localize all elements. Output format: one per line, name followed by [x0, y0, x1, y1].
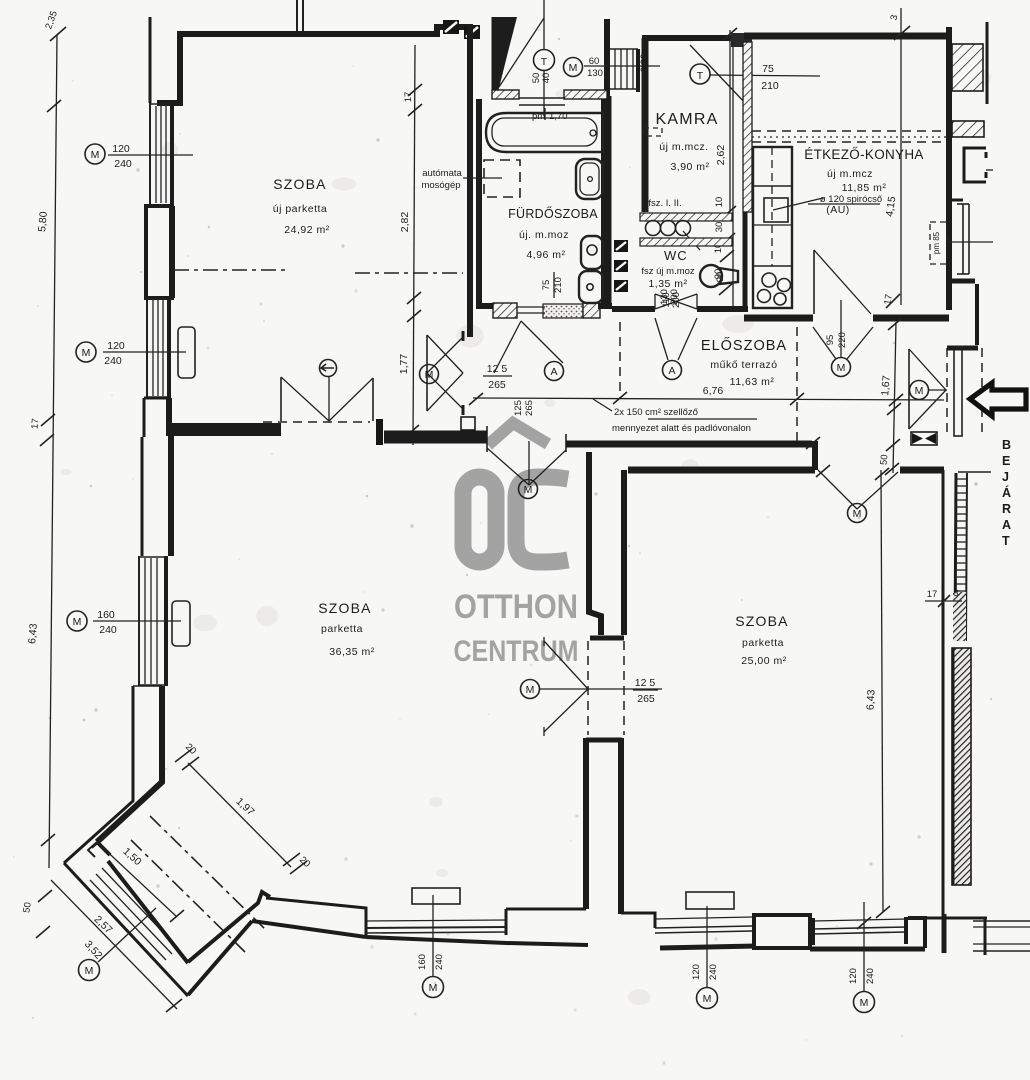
svg-text:265: 265: [524, 400, 535, 416]
svg-text:parketta: parketta: [742, 637, 784, 649]
svg-text:A: A: [1002, 518, 1011, 532]
svg-text:240: 240: [865, 968, 876, 984]
svg-text:új m.mcz.: új m.mcz.: [659, 141, 708, 153]
svg-text:200: 200: [671, 292, 682, 308]
svg-text:120: 120: [107, 340, 125, 352]
svg-text:90: 90: [715, 272, 726, 283]
svg-text:Á: Á: [1002, 485, 1011, 500]
svg-text:95: 95: [825, 335, 836, 346]
svg-text:2,82: 2,82: [399, 212, 411, 233]
svg-text:SZOBA: SZOBA: [318, 600, 371, 616]
svg-text:fsz új m.moz: fsz új m.moz: [641, 266, 695, 277]
svg-text:4,96 m²: 4,96 m²: [526, 249, 565, 261]
svg-text:új m.mcz: új m.mcz: [827, 168, 873, 180]
svg-text:A: A: [550, 366, 557, 378]
svg-text:11,85 m²: 11,85 m²: [842, 182, 887, 194]
svg-text:12 5: 12 5: [635, 677, 656, 689]
svg-text:160: 160: [97, 609, 115, 621]
svg-text:1,70: 1,70: [549, 111, 568, 122]
svg-text:M: M: [915, 385, 924, 397]
svg-text:210: 210: [761, 80, 779, 92]
svg-text:17: 17: [882, 293, 895, 305]
svg-text:M: M: [73, 616, 82, 628]
svg-text:CENTRUM: CENTRUM: [454, 635, 579, 668]
svg-text:autómata: autómata: [422, 168, 462, 179]
svg-text:120: 120: [112, 143, 130, 155]
svg-text:3: 3: [953, 588, 958, 599]
svg-text:240: 240: [708, 964, 719, 980]
svg-text:T: T: [541, 56, 548, 68]
svg-text:ÉTKEZŐ-KONYHA: ÉTKEZŐ-KONYHA: [804, 147, 923, 162]
svg-text:120: 120: [848, 968, 859, 984]
svg-text:6,43: 6,43: [864, 689, 877, 710]
svg-text:75: 75: [762, 63, 774, 75]
svg-text:R: R: [1002, 502, 1011, 516]
svg-text:új parketta: új parketta: [273, 203, 328, 215]
svg-text:M: M: [853, 508, 862, 520]
svg-text:75: 75: [541, 280, 552, 291]
svg-text:24,92 m²: 24,92 m²: [284, 224, 329, 236]
svg-text:M: M: [703, 993, 712, 1005]
svg-text:pm: pm: [532, 111, 545, 122]
svg-text:M: M: [526, 684, 535, 696]
svg-text:210: 210: [553, 277, 564, 293]
svg-text:240: 240: [99, 624, 117, 636]
svg-text:125: 125: [513, 400, 524, 416]
svg-text:új. m.moz: új. m.moz: [519, 229, 569, 241]
svg-text:3,90 m²: 3,90 m²: [670, 161, 709, 173]
svg-text:10: 10: [714, 197, 725, 208]
svg-text:SZOBA: SZOBA: [735, 613, 788, 629]
svg-text:műkő terrazó: műkő terrazó: [710, 359, 777, 371]
svg-text:130: 130: [587, 68, 603, 79]
svg-text:2x 150 cm² szellőző: 2x 150 cm² szellőző: [614, 407, 698, 418]
svg-text:1,67: 1,67: [879, 375, 893, 397]
svg-text:17: 17: [927, 589, 938, 600]
svg-text:220: 220: [837, 332, 848, 348]
svg-text:M: M: [837, 362, 846, 374]
svg-text:J: J: [1002, 470, 1009, 484]
svg-text:17: 17: [30, 418, 42, 429]
svg-text:40: 40: [541, 73, 552, 84]
svg-text:11,63 m²: 11,63 m²: [730, 376, 775, 388]
svg-text:A: A: [668, 365, 675, 377]
svg-text:160: 160: [417, 954, 428, 970]
svg-text:pm 85: pm 85: [932, 231, 941, 254]
svg-text:30: 30: [714, 222, 725, 233]
svg-text:WC: WC: [664, 248, 688, 263]
svg-text:6,76: 6,76: [703, 385, 724, 397]
svg-text:36,35 m²: 36,35 m²: [329, 646, 374, 658]
svg-text:265: 265: [488, 379, 506, 391]
svg-text:M: M: [425, 369, 434, 381]
svg-text:M: M: [429, 982, 438, 994]
svg-text:mosógép: mosógép: [421, 180, 460, 191]
svg-text:50: 50: [879, 454, 891, 465]
svg-text:mennyezet alatt és padlóvonalo: mennyezet alatt és padlóvonalon: [612, 423, 751, 434]
svg-text:T: T: [1002, 534, 1010, 548]
svg-text:240: 240: [104, 355, 122, 367]
svg-text:M: M: [569, 62, 578, 74]
svg-text:ELŐSZOBA: ELŐSZOBA: [701, 337, 787, 354]
svg-text:1,35 m²: 1,35 m²: [648, 278, 687, 290]
svg-text:17: 17: [403, 92, 414, 103]
svg-text:240: 240: [114, 158, 132, 170]
svg-text:FÜRDŐSZOBA: FÜRDŐSZOBA: [508, 206, 598, 221]
svg-text:2,62: 2,62: [715, 145, 727, 166]
svg-text:SZOBA: SZOBA: [273, 176, 326, 192]
svg-text:B: B: [1002, 438, 1011, 452]
svg-text:(AU): (AU): [826, 204, 850, 216]
svg-text:265: 265: [637, 693, 655, 705]
svg-text:M: M: [82, 347, 91, 359]
svg-text:120: 120: [691, 964, 702, 980]
svg-text:240: 240: [434, 954, 445, 970]
svg-text:OTTHON: OTTHON: [454, 588, 578, 626]
svg-text:M: M: [85, 965, 94, 977]
svg-text:parketta: parketta: [321, 623, 363, 635]
svg-text:M: M: [91, 149, 100, 161]
svg-text:25,00 m²: 25,00 m²: [741, 655, 786, 667]
svg-text:M: M: [860, 997, 869, 1009]
svg-text:6,43: 6,43: [26, 623, 40, 645]
svg-text:fsz. I. II.: fsz. I. II.: [648, 198, 681, 209]
svg-text:T: T: [697, 70, 704, 82]
svg-text:KAMRA: KAMRA: [656, 111, 719, 128]
svg-text:M: M: [524, 484, 533, 496]
svg-text:E: E: [1002, 454, 1010, 468]
svg-text:50: 50: [21, 901, 34, 913]
svg-text:12 5: 12 5: [487, 363, 508, 375]
svg-text:1,77: 1,77: [398, 354, 410, 375]
svg-text:5,80: 5,80: [36, 211, 50, 233]
